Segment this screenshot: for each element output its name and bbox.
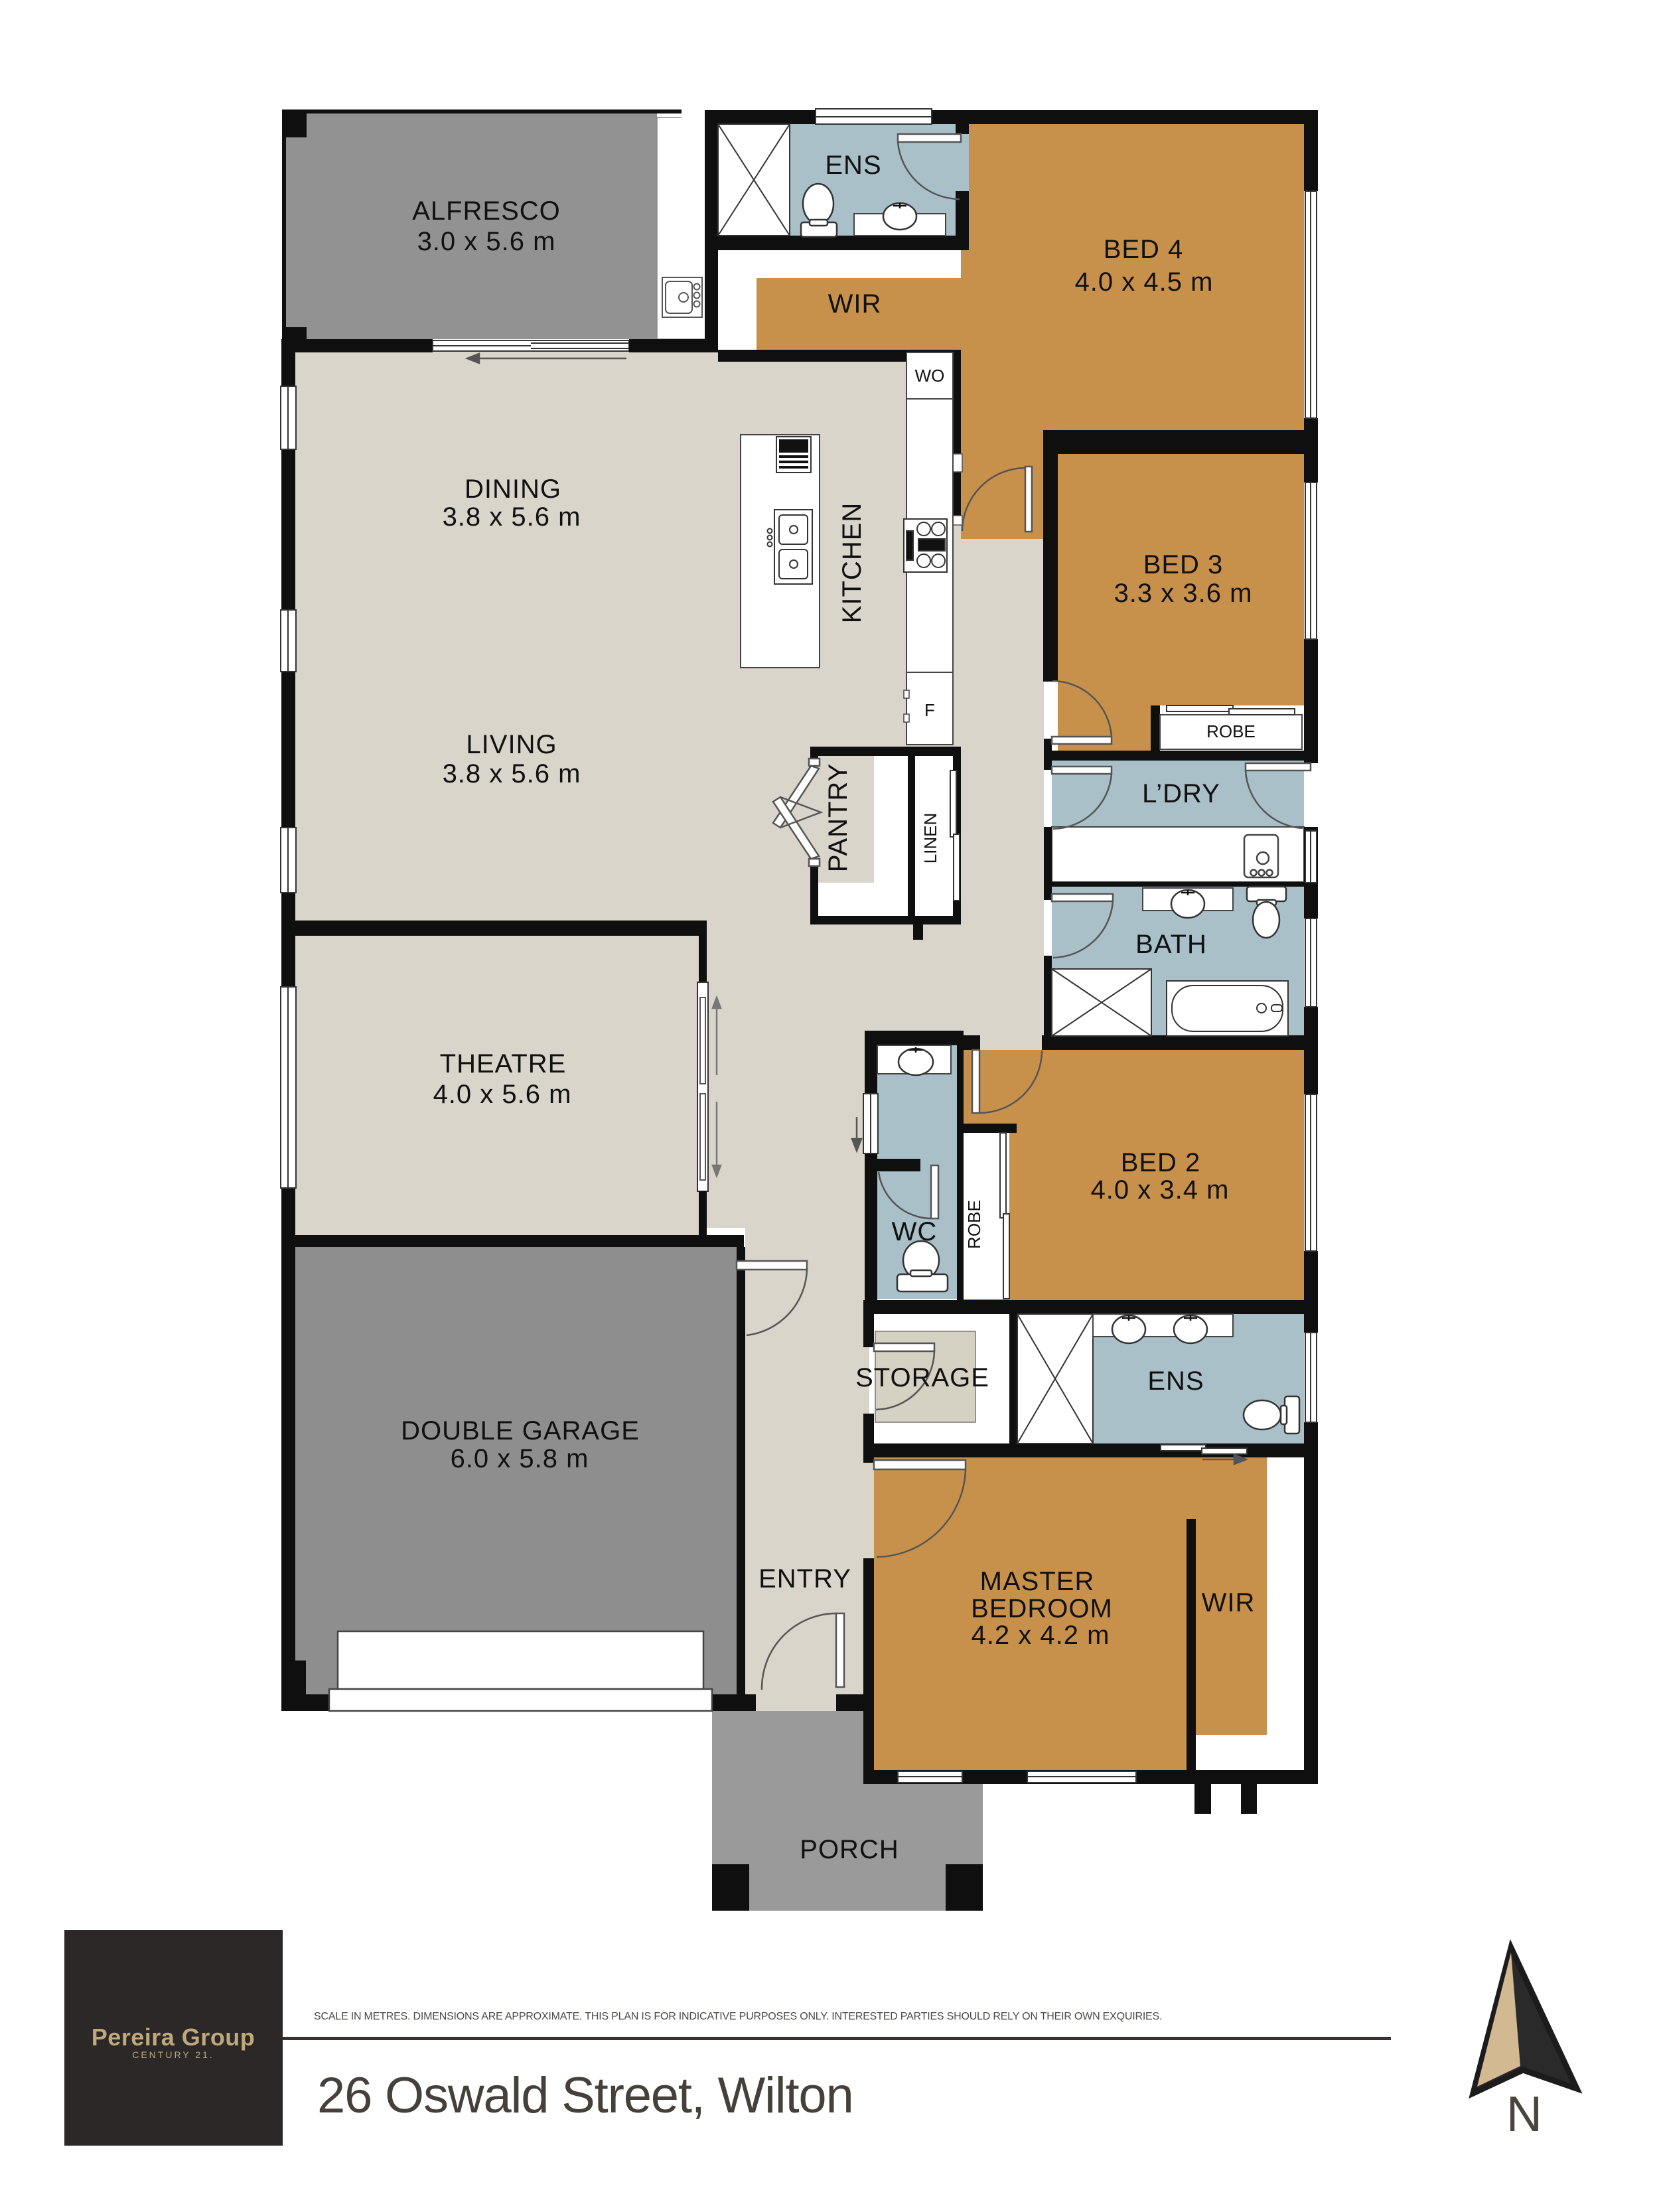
svg-text:ROBE: ROBE [1206, 721, 1256, 741]
svg-text:MASTER: MASTER [980, 1567, 1095, 1596]
svg-text:KITCHEN: KITCHEN [837, 502, 867, 624]
svg-text:WIR: WIR [1202, 1588, 1256, 1617]
svg-text:ALFRESCO: ALFRESCO [412, 196, 561, 226]
svg-text:WIR: WIR [828, 289, 882, 319]
svg-text:26 Oswald Street, Wilton: 26 Oswald Street, Wilton [317, 2067, 853, 2124]
svg-text:N: N [1506, 2086, 1542, 2142]
svg-text:L’DRY: L’DRY [1142, 779, 1220, 808]
svg-text:ENTRY: ENTRY [758, 1564, 851, 1593]
svg-text:4.2 x 4.2 m: 4.2 x 4.2 m [972, 1621, 1110, 1650]
svg-text:4.0 x 3.4 m: 4.0 x 3.4 m [1091, 1175, 1230, 1205]
svg-text:3.3 x 3.6 m: 3.3 x 3.6 m [1114, 579, 1253, 608]
svg-text:WO: WO [915, 366, 945, 386]
svg-text:PORCH: PORCH [800, 1835, 899, 1864]
svg-text:SCALE IN METRES. DIMENSIONS AR: SCALE IN METRES. DIMENSIONS ARE APPROXIM… [314, 2011, 1162, 2022]
svg-text:3.8 x 5.6 m: 3.8 x 5.6 m [443, 759, 581, 788]
svg-text:LINEN: LINEN [920, 813, 940, 864]
svg-text:PANTRY: PANTRY [824, 763, 853, 873]
svg-text:CENTURY 21.: CENTURY 21. [132, 2049, 214, 2060]
svg-text:Pereira Group: Pereira Group [92, 2024, 255, 2051]
svg-text:4.0 x 4.5 m: 4.0 x 4.5 m [1075, 267, 1214, 297]
svg-text:3.8 x 5.6 m: 3.8 x 5.6 m [443, 502, 581, 532]
svg-text:BED 4: BED 4 [1104, 235, 1184, 264]
svg-text:STORAGE: STORAGE [855, 1363, 989, 1392]
svg-text:F: F [924, 700, 935, 720]
svg-text:ENS: ENS [825, 151, 881, 180]
svg-text:6.0 x 5.8 m: 6.0 x 5.8 m [451, 1444, 589, 1473]
svg-text:3.0 x 5.6 m: 3.0 x 5.6 m [417, 227, 556, 256]
svg-text:BED 2: BED 2 [1121, 1148, 1201, 1177]
svg-text:BATH: BATH [1135, 930, 1207, 959]
svg-text:DINING: DINING [465, 475, 561, 504]
svg-text:WC: WC [892, 1217, 938, 1246]
svg-text:ROBE: ROBE [964, 1200, 984, 1249]
svg-text:BED 3: BED 3 [1143, 550, 1224, 579]
svg-text:THEATRE: THEATRE [440, 1049, 567, 1078]
svg-text:4.0 x 5.6 m: 4.0 x 5.6 m [433, 1080, 572, 1109]
svg-text:BEDROOM: BEDROOM [971, 1594, 1113, 1623]
svg-text:DOUBLE GARAGE: DOUBLE GARAGE [401, 1416, 640, 1445]
svg-text:LIVING: LIVING [466, 730, 557, 759]
svg-text:ENS: ENS [1147, 1366, 1204, 1396]
